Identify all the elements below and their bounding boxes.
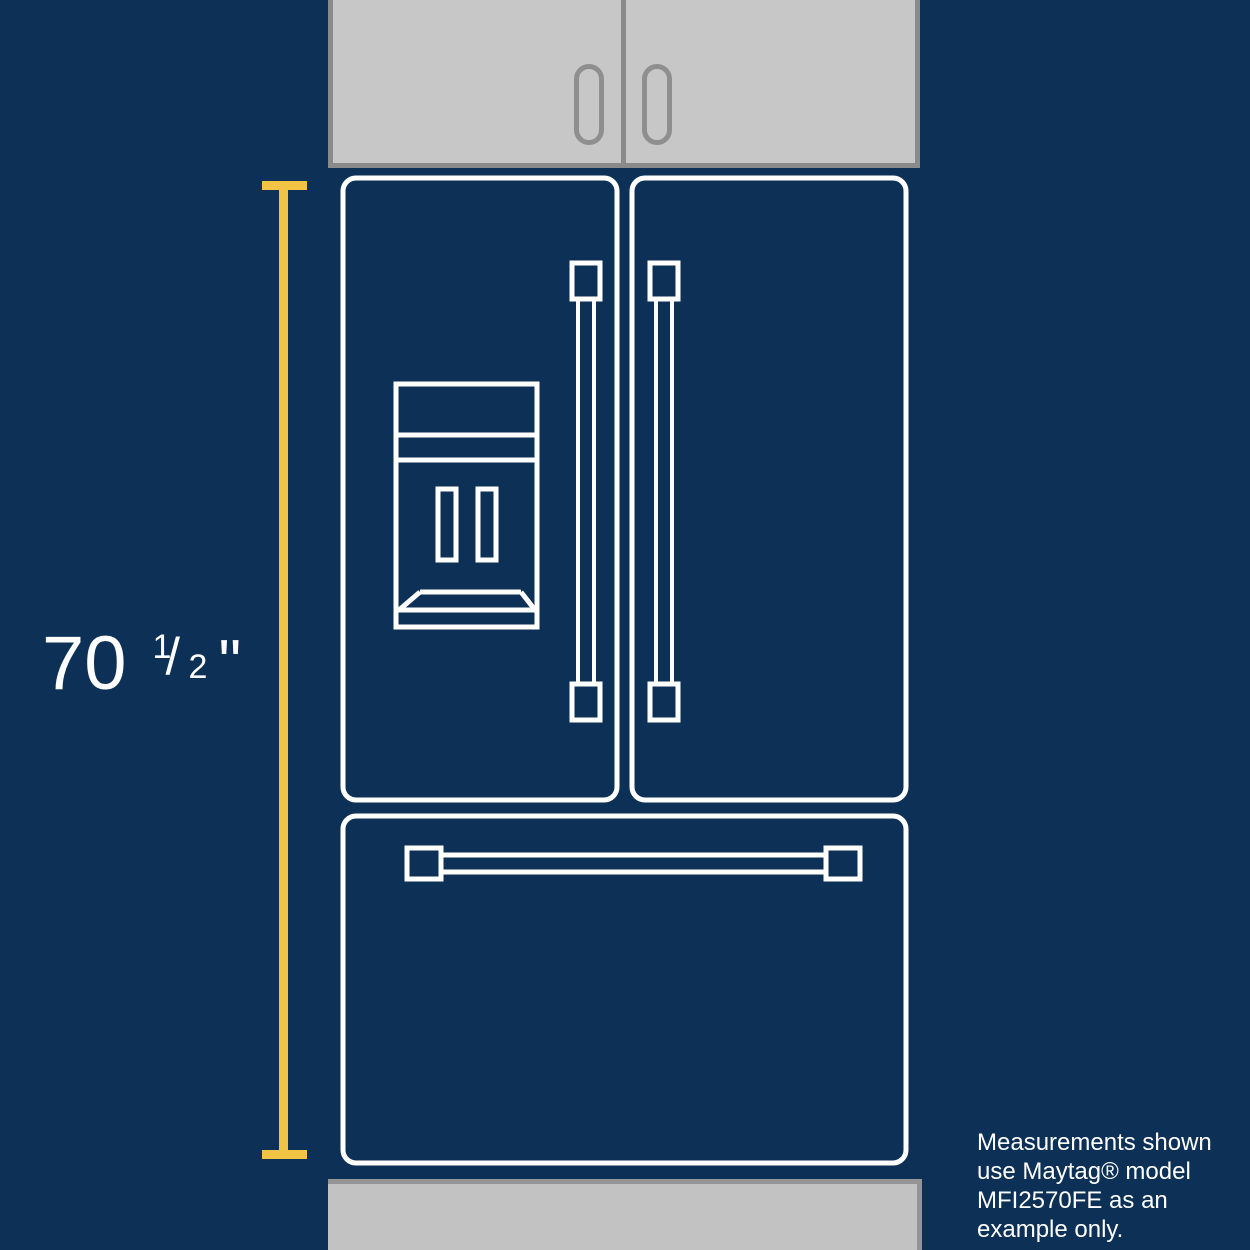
refrigerator-outline-drawing xyxy=(0,0,1250,1250)
floor-toe-kick xyxy=(328,1179,922,1250)
water-ice-dispenser xyxy=(396,384,537,627)
dispenser-paddle-left xyxy=(438,489,456,560)
dimension-whole-number: 70 xyxy=(42,626,127,702)
refrigerator-height-diagram: 70 1 / 2 " Measurements shown use Maytag… xyxy=(0,0,1250,1250)
fraction-denominator: 2 xyxy=(189,650,208,684)
disclaimer-text: Measurements shown use Maytag® model MFI… xyxy=(977,1128,1212,1244)
disclaimer-line: Measurements shown xyxy=(977,1128,1212,1157)
freezer-drawer xyxy=(343,816,906,1163)
ruler-bottom-cap xyxy=(262,1150,307,1159)
left-door-handle xyxy=(572,263,600,720)
right-door-handle xyxy=(650,263,678,720)
height-dimension-label: 70 1 / 2 " xyxy=(42,626,241,702)
dispenser-paddle-right xyxy=(478,489,496,560)
inch-mark: " xyxy=(219,630,242,694)
drawer-handle xyxy=(407,848,860,879)
dispenser-drip-tray xyxy=(396,592,537,610)
disclaimer-line: MFI2570FE as an xyxy=(977,1186,1212,1215)
dimension-fraction: 1 / 2 xyxy=(153,626,211,702)
disclaimer-line: example only. xyxy=(977,1215,1212,1244)
ruler-line xyxy=(279,189,288,1150)
fraction-slash: / xyxy=(166,631,180,683)
disclaimer-line: use Maytag® model xyxy=(977,1157,1212,1186)
